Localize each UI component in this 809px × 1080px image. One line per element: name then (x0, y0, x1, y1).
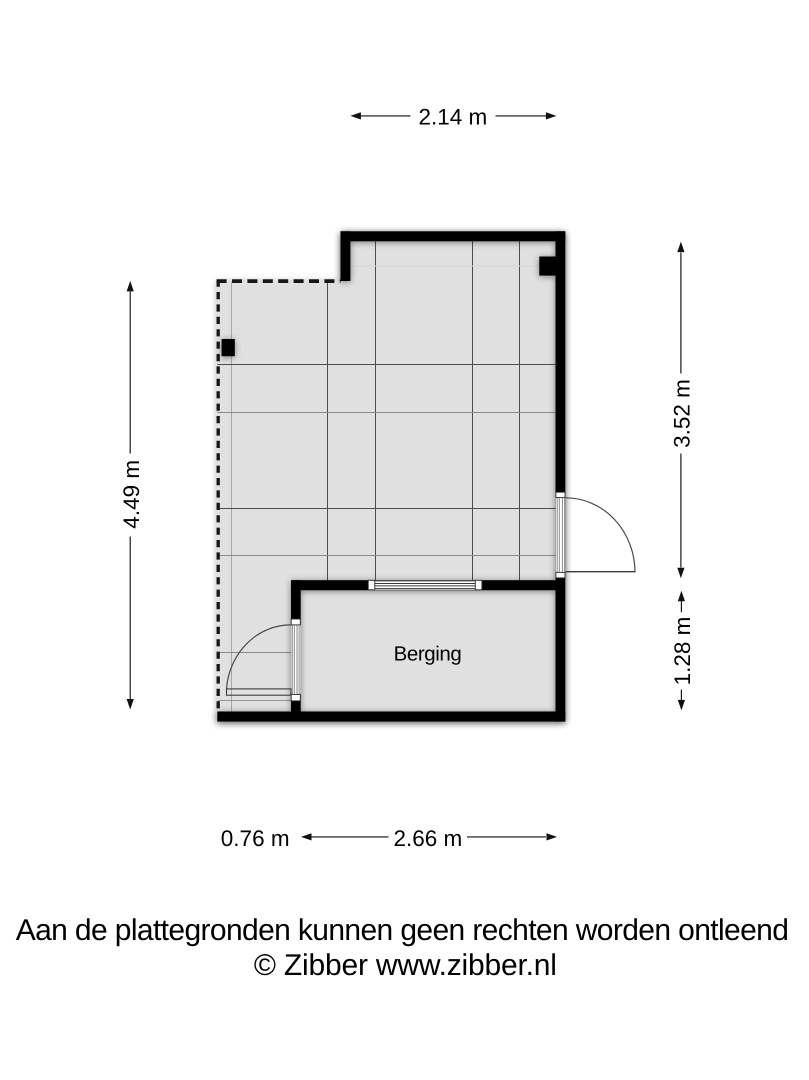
svg-text:3.52 m: 3.52 m (670, 379, 695, 448)
svg-text:2.14 m: 2.14 m (419, 104, 488, 129)
svg-text:0.76 m: 0.76 m (221, 826, 290, 851)
svg-text:Aan de plattegronden kunnen ge: Aan de plattegronden kunnen geen rechten… (16, 914, 789, 947)
svg-text:4.49 m: 4.49 m (119, 460, 144, 529)
svg-text:Berging: Berging (394, 642, 462, 665)
svg-text:1.28 m: 1.28 m (670, 617, 695, 686)
svg-text:© Zibber www.zibber.nl: © Zibber www.zibber.nl (254, 949, 557, 982)
svg-text:2.66 m: 2.66 m (394, 826, 463, 851)
